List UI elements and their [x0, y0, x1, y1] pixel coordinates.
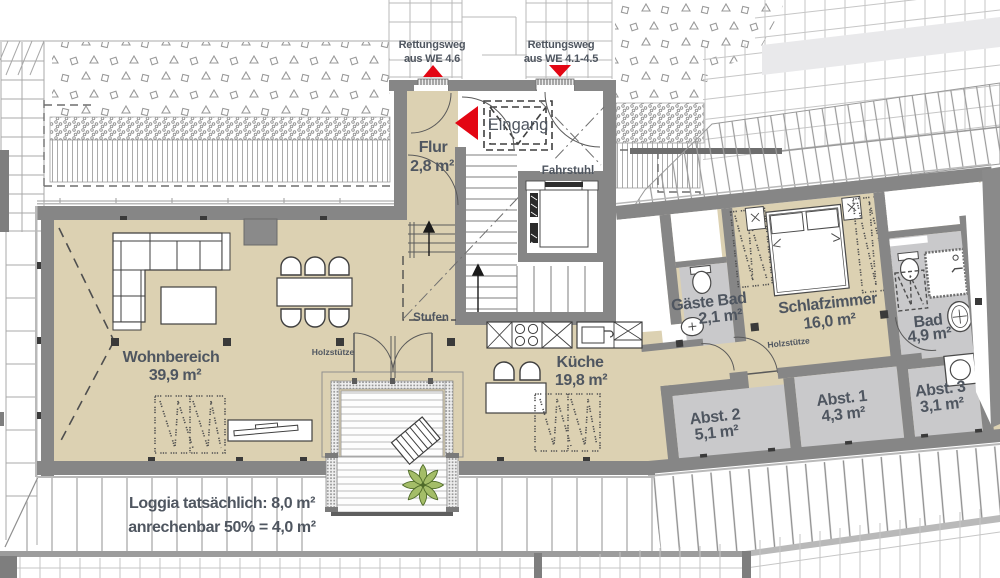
svg-text:Rettungsweg: Rettungsweg	[399, 39, 466, 51]
svg-text:39,9 m²: 39,9 m²	[149, 367, 201, 384]
svg-text:Wohnbereich: Wohnbereich	[123, 349, 220, 366]
svg-text:Eingang: Eingang	[488, 116, 549, 134]
svg-text:Holzstütze: Holzstütze	[312, 347, 355, 357]
svg-text:Flur: Flur	[419, 139, 448, 156]
svg-text:aus WE 4.1-4.5: aus WE 4.1-4.5	[524, 53, 598, 65]
svg-text:Küche: Küche	[557, 354, 604, 371]
svg-text:Rettungsweg: Rettungsweg	[528, 39, 595, 51]
svg-text:Stufen: Stufen	[413, 312, 449, 324]
svg-text:anrechenbar 50% = 4,0 m²: anrechenbar 50% = 4,0 m²	[128, 519, 315, 536]
svg-text:2,8 m²: 2,8 m²	[410, 158, 454, 175]
svg-text:aus WE 4.6: aus WE 4.6	[404, 53, 460, 65]
svg-text:19,8 m²: 19,8 m²	[555, 372, 607, 389]
svg-text:Fahrstuhl: Fahrstuhl	[542, 165, 594, 177]
svg-text:Loggia tatsächlich: 8,0 m²: Loggia tatsächlich: 8,0 m²	[129, 495, 315, 512]
